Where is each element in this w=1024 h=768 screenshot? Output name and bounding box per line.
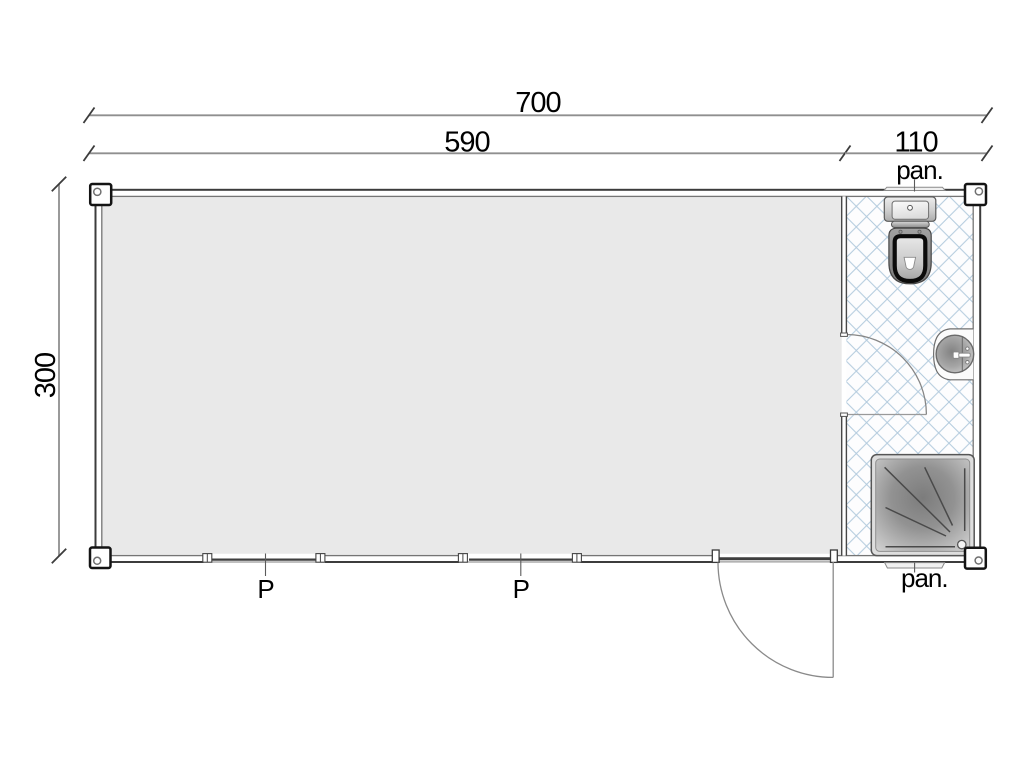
svg-text:pan.: pan. (896, 155, 943, 185)
svg-text:590: 590 (444, 126, 489, 158)
svg-text:pan.: pan. (901, 563, 948, 593)
svg-text:110: 110 (894, 126, 937, 158)
svg-text:300: 300 (30, 353, 62, 398)
svg-text:P: P (513, 574, 530, 604)
svg-text:700: 700 (515, 87, 560, 119)
svg-text:P: P (257, 574, 274, 604)
